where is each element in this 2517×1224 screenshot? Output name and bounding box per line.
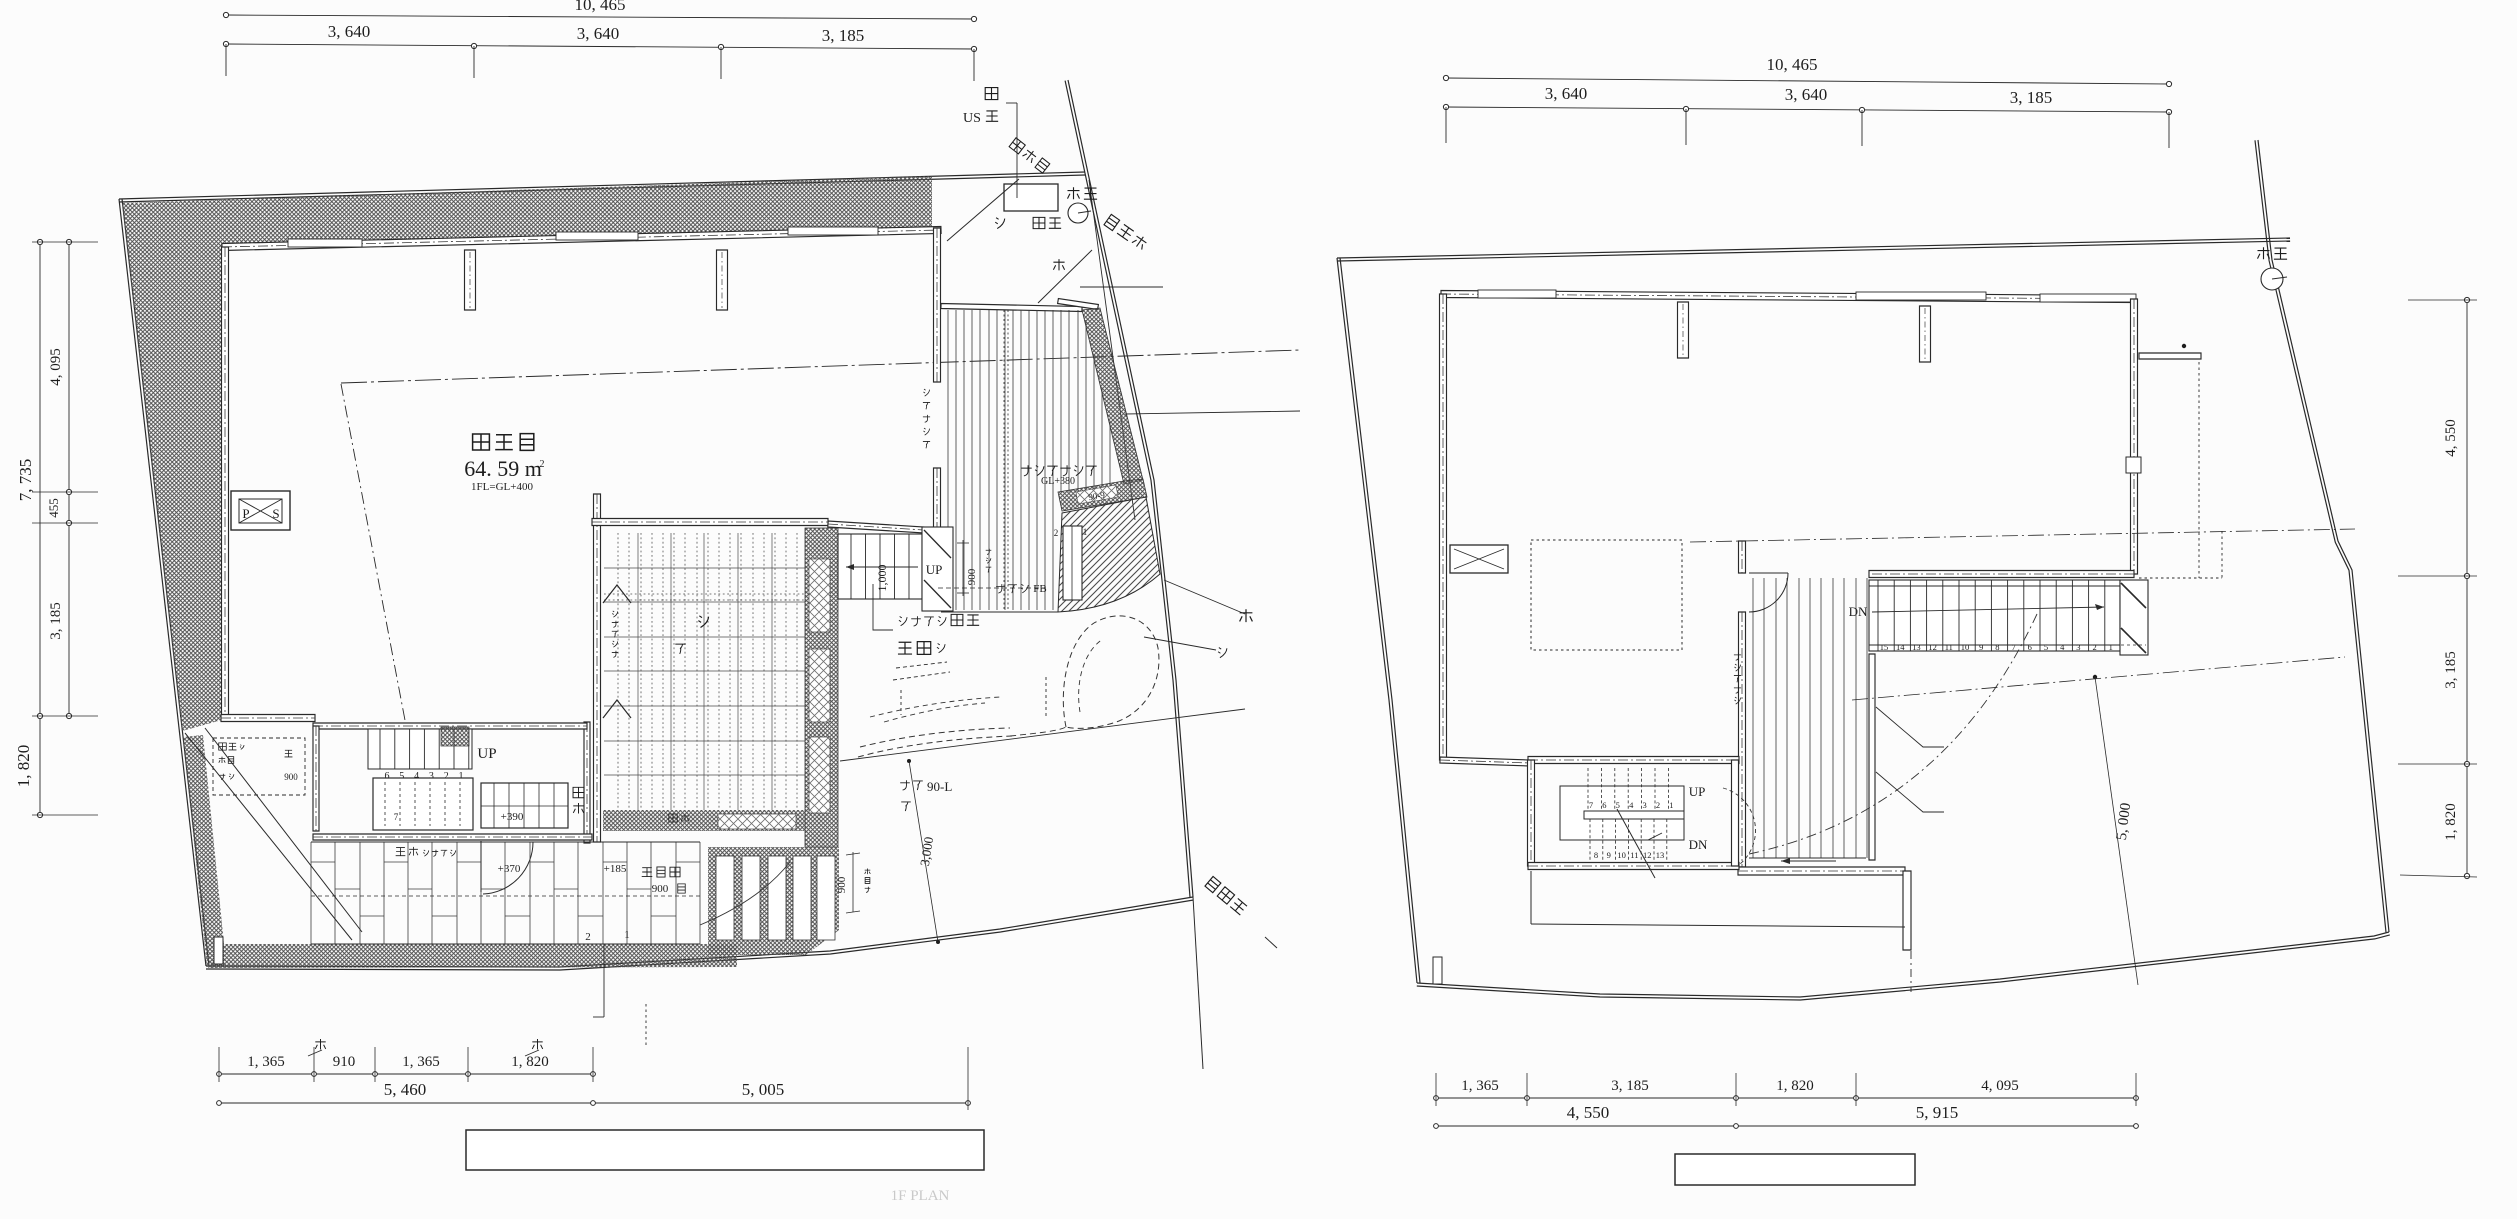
svg-text:8: 8 bbox=[1995, 642, 1999, 652]
svg-text:3, 640: 3, 640 bbox=[1545, 84, 1588, 103]
svg-text:6: 6 bbox=[1602, 800, 1606, 810]
svg-text:3, 640: 3, 640 bbox=[1785, 85, 1828, 104]
svg-text:DN: DN bbox=[1689, 837, 1708, 852]
svg-text:5, 005: 5, 005 bbox=[742, 1080, 785, 1099]
svg-text:1F PLAN: 1F PLAN bbox=[891, 1188, 950, 1204]
svg-text:3, 185: 3, 185 bbox=[2010, 88, 2053, 107]
svg-text:3, 185: 3, 185 bbox=[2443, 651, 2459, 689]
svg-text:2: 2 bbox=[585, 931, 591, 943]
svg-text:900: 900 bbox=[836, 876, 848, 893]
svg-text:6: 6 bbox=[2028, 642, 2032, 652]
svg-text:1, 820: 1, 820 bbox=[1776, 1078, 1814, 1094]
svg-text:8: 8 bbox=[1594, 850, 1598, 860]
svg-text:1: 1 bbox=[1669, 800, 1673, 810]
svg-text:900: 900 bbox=[652, 883, 669, 895]
svg-text:10, 465: 10, 465 bbox=[575, 0, 626, 14]
svg-text:13: 13 bbox=[1912, 642, 1921, 652]
svg-text:10, 465: 10, 465 bbox=[1767, 55, 1818, 74]
svg-text:UP: UP bbox=[1689, 784, 1706, 799]
svg-text:10: 10 bbox=[1961, 642, 1970, 652]
svg-text:11: 11 bbox=[1630, 850, 1638, 860]
svg-text:1: 1 bbox=[2109, 642, 2113, 652]
svg-text:DN: DN bbox=[1849, 604, 1868, 619]
svg-text:910: 910 bbox=[333, 1054, 356, 1070]
svg-text:3: 3 bbox=[2076, 642, 2080, 652]
svg-text:9: 9 bbox=[1979, 642, 1983, 652]
svg-text:+370: +370 bbox=[498, 863, 521, 875]
svg-text:+390: +390 bbox=[501, 811, 524, 823]
svg-text:1,000: 1,000 bbox=[875, 565, 889, 592]
svg-text:13: 13 bbox=[1656, 850, 1665, 860]
svg-text:3, 185: 3, 185 bbox=[48, 602, 64, 640]
svg-text:2: 2 bbox=[1656, 800, 1660, 810]
svg-text:1FL=GL+400: 1FL=GL+400 bbox=[471, 481, 533, 493]
svg-text:14: 14 bbox=[1896, 642, 1905, 652]
svg-text:4, 095: 4, 095 bbox=[1981, 1078, 2019, 1094]
svg-text:1, 365: 1, 365 bbox=[1461, 1078, 1499, 1094]
svg-text:1, 365: 1, 365 bbox=[247, 1054, 285, 1070]
svg-text:UP: UP bbox=[926, 562, 943, 577]
svg-text:11: 11 bbox=[1945, 642, 1953, 652]
svg-text:P: P bbox=[242, 506, 249, 521]
svg-text:64. 59 m: 64. 59 m bbox=[464, 456, 542, 481]
svg-text:4: 4 bbox=[2060, 642, 2065, 652]
svg-text:10: 10 bbox=[1617, 850, 1626, 860]
svg-text:5, 915: 5, 915 bbox=[1916, 1103, 1959, 1122]
svg-text:US: US bbox=[963, 111, 981, 126]
svg-text:FB: FB bbox=[1033, 583, 1046, 595]
svg-text:2: 2 bbox=[1054, 528, 1059, 538]
svg-text:4: 4 bbox=[1629, 800, 1634, 810]
svg-text:7: 7 bbox=[394, 812, 399, 822]
svg-text:GL+380: GL+380 bbox=[1041, 476, 1075, 487]
svg-text:1, 820: 1, 820 bbox=[14, 745, 33, 788]
svg-text:1, 365: 1, 365 bbox=[402, 1054, 440, 1070]
svg-text:4, 550: 4, 550 bbox=[2443, 419, 2459, 457]
svg-text:1, 820: 1, 820 bbox=[511, 1054, 549, 1070]
svg-text:S: S bbox=[272, 506, 279, 521]
svg-text:3, 640: 3, 640 bbox=[328, 22, 371, 41]
svg-text:2: 2 bbox=[2092, 642, 2096, 652]
svg-text:15: 15 bbox=[1880, 642, 1889, 652]
svg-text:7, 735: 7, 735 bbox=[16, 459, 35, 502]
svg-text:9: 9 bbox=[1607, 850, 1611, 860]
svg-text:12: 12 bbox=[1928, 642, 1937, 652]
svg-text:90-L: 90-L bbox=[927, 779, 952, 794]
svg-text:4, 550: 4, 550 bbox=[1567, 1103, 1610, 1122]
svg-text:1: 1 bbox=[1083, 527, 1088, 537]
svg-text:5: 5 bbox=[2044, 642, 2048, 652]
svg-text:2: 2 bbox=[540, 459, 545, 470]
svg-text:3, 185: 3, 185 bbox=[822, 26, 865, 45]
svg-text:3, 640: 3, 640 bbox=[577, 24, 620, 43]
svg-text:UP: UP bbox=[477, 746, 496, 762]
svg-text:7: 7 bbox=[2011, 642, 2015, 652]
svg-text:+185: +185 bbox=[604, 863, 627, 875]
svg-text:7: 7 bbox=[1589, 800, 1593, 810]
svg-text:1, 820: 1, 820 bbox=[2443, 803, 2459, 841]
svg-text:900: 900 bbox=[284, 772, 298, 782]
svg-text:3: 3 bbox=[1642, 800, 1646, 810]
svg-text:3, 185: 3, 185 bbox=[1611, 1078, 1649, 1094]
svg-text:1: 1 bbox=[624, 929, 630, 941]
svg-text:5, 460: 5, 460 bbox=[384, 1080, 427, 1099]
svg-text:4, 095: 4, 095 bbox=[48, 348, 64, 386]
svg-text:5: 5 bbox=[1616, 800, 1620, 810]
svg-text:455: 455 bbox=[46, 498, 61, 518]
